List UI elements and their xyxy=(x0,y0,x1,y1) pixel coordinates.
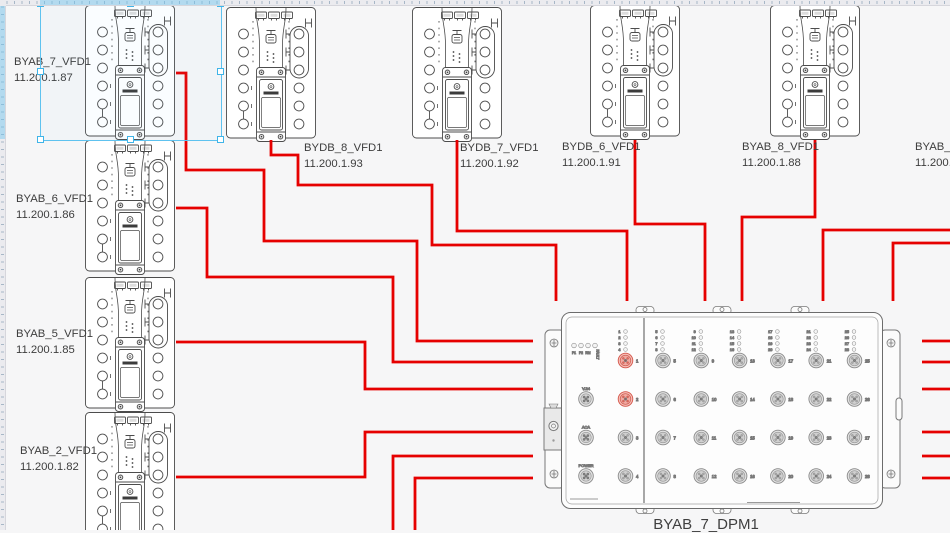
svg-text:18: 18 xyxy=(768,336,772,340)
cable-BYAB_5_VFD1[interactable] xyxy=(176,342,533,389)
svg-text:21: 21 xyxy=(827,358,832,363)
svg-text:23: 23 xyxy=(827,435,832,440)
svg-text:1: 1 xyxy=(618,330,620,334)
ruler-selection-span-v xyxy=(0,3,5,139)
svg-text:19: 19 xyxy=(788,435,793,440)
selection-handle[interactable] xyxy=(217,136,224,143)
svg-text:12: 12 xyxy=(692,348,696,352)
svg-text:18: 18 xyxy=(788,397,793,402)
device-BYDB_8_VFD1[interactable] xyxy=(227,8,316,142)
svg-text:9: 9 xyxy=(694,330,696,334)
svg-text:15: 15 xyxy=(730,342,734,346)
svg-text:27: 27 xyxy=(845,342,849,346)
selection-handle[interactable] xyxy=(37,136,44,143)
diagram-canvas: P1P2RMFAULT12341234V.24ACAPOWER567856789… xyxy=(0,0,950,530)
svg-text:21: 21 xyxy=(806,330,810,334)
cable-BYDB_6_VFD1[interactable] xyxy=(635,140,705,301)
svg-text:25: 25 xyxy=(865,358,870,363)
ruler-horizontal xyxy=(0,0,950,6)
ruler-corner xyxy=(0,0,6,6)
cable-offscreen-bottom-2[interactable] xyxy=(415,478,533,530)
cable-offscreen-right-2[interactable] xyxy=(893,243,950,301)
svg-text:22: 22 xyxy=(827,397,832,402)
svg-text:20: 20 xyxy=(788,474,793,479)
svg-text:V.24: V.24 xyxy=(582,386,591,391)
svg-text:20: 20 xyxy=(768,348,772,352)
svg-text:17: 17 xyxy=(788,358,793,363)
svg-text:13: 13 xyxy=(730,330,734,334)
ground-clamp xyxy=(544,404,563,450)
svg-text:16: 16 xyxy=(730,348,734,352)
svg-text:27: 27 xyxy=(865,435,870,440)
svg-text:5: 5 xyxy=(655,330,657,334)
ruler-selection-span-h xyxy=(40,0,220,5)
svg-text:14: 14 xyxy=(730,336,734,340)
svg-text:11: 11 xyxy=(692,342,696,346)
svg-text:15: 15 xyxy=(750,435,755,440)
svg-text:8: 8 xyxy=(655,348,657,352)
selection-handle[interactable] xyxy=(217,68,224,75)
svg-text:2: 2 xyxy=(618,336,620,340)
svg-text:13: 13 xyxy=(750,358,755,363)
svg-text:P1: P1 xyxy=(572,351,576,355)
cable-offscreen-right-1[interactable] xyxy=(823,230,950,301)
panel-device[interactable]: P1P2RMFAULT12341234V.24ACAPOWER567856789… xyxy=(544,307,902,514)
device-BYAB_6_VFD1[interactable] xyxy=(86,141,175,275)
svg-text:12: 12 xyxy=(712,474,717,479)
svg-text:P2: P2 xyxy=(579,351,583,355)
svg-text:POWER: POWER xyxy=(578,463,593,468)
selection-handle[interactable] xyxy=(127,136,134,143)
cable-BYAB_8_VFD1[interactable] xyxy=(742,140,815,301)
svg-text:FAULT: FAULT xyxy=(596,350,600,360)
device-BYAB_5_VFD1[interactable] xyxy=(86,278,175,412)
svg-text:28: 28 xyxy=(845,348,849,352)
svg-text:26: 26 xyxy=(845,336,849,340)
ruler-vertical xyxy=(0,0,6,530)
svg-text:11: 11 xyxy=(712,435,717,440)
svg-text:4: 4 xyxy=(618,348,620,352)
svg-text:28: 28 xyxy=(865,474,870,479)
svg-text:RM: RM xyxy=(585,351,590,355)
svg-text:6: 6 xyxy=(655,336,657,340)
device-BYAB_8_VFD1[interactable] xyxy=(771,6,860,140)
svg-text:24: 24 xyxy=(827,474,832,479)
cable-BYDB_7_VFD1[interactable] xyxy=(457,140,627,301)
svg-text:7: 7 xyxy=(655,342,657,346)
svg-text:10: 10 xyxy=(692,336,696,340)
diagram-stage: P1P2RMFAULT12341234V.24ACAPOWER567856789… xyxy=(0,0,950,530)
svg-text:19: 19 xyxy=(768,342,772,346)
svg-text:3: 3 xyxy=(618,342,620,346)
device-BYDB_6_VFD1[interactable] xyxy=(591,6,680,140)
svg-text:17: 17 xyxy=(768,330,772,334)
svg-text:24: 24 xyxy=(806,348,810,352)
svg-text:16: 16 xyxy=(750,474,755,479)
device-BYAB_2_VFD1[interactable] xyxy=(86,413,175,531)
svg-text:25: 25 xyxy=(845,330,849,334)
selection-handle[interactable] xyxy=(37,68,44,75)
svg-text:22: 22 xyxy=(806,336,810,340)
svg-text:26: 26 xyxy=(865,397,870,402)
svg-text:14: 14 xyxy=(750,397,755,402)
svg-text:ACA: ACA xyxy=(582,425,591,430)
svg-text:23: 23 xyxy=(806,342,810,346)
device-BYDB_7_VFD1[interactable] xyxy=(413,8,502,142)
svg-text:10: 10 xyxy=(712,397,717,402)
cable-BYAB_2_VFD1[interactable] xyxy=(176,432,533,477)
aux-connector-POWER: POWER xyxy=(578,463,593,483)
device-BYAB_7_VFD1[interactable] xyxy=(86,6,175,140)
